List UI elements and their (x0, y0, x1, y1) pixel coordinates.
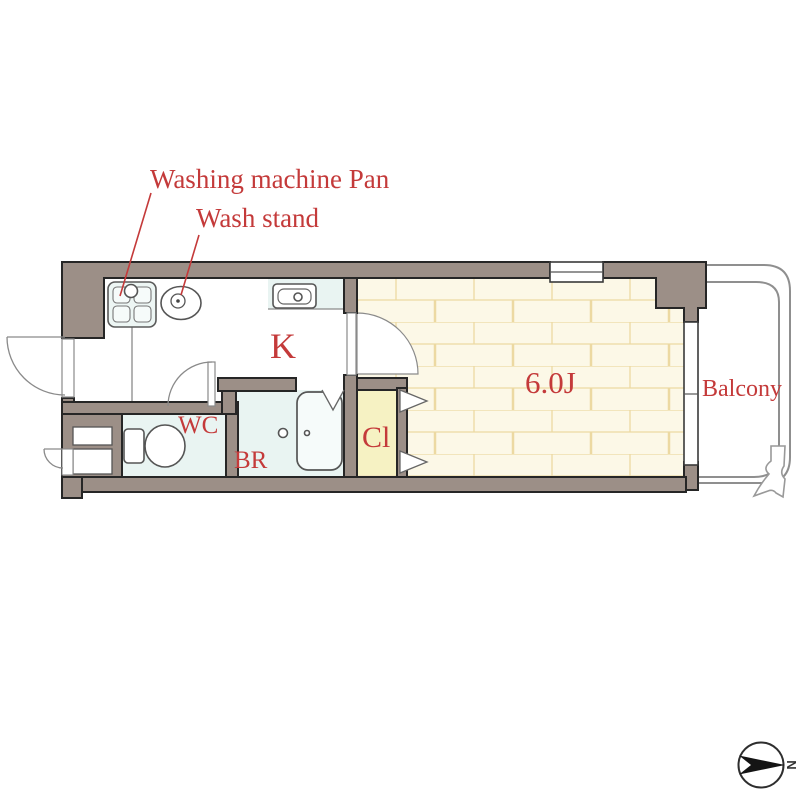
meter-box-upper (73, 427, 112, 445)
floor-plan-canvas: Washing machine Pan Wash stand K 6.0J Ba… (0, 0, 800, 800)
toilet-label: WC (178, 412, 218, 439)
compass: N (739, 743, 800, 788)
pan-corner (134, 306, 151, 322)
toilet (124, 425, 185, 467)
entrance-door-frame (62, 339, 74, 397)
pan-drain (125, 285, 138, 298)
wall-kitchen-room-divider (344, 278, 357, 313)
compass-north-label: N (784, 760, 799, 769)
bathroom-drain (279, 429, 288, 438)
wash-stand (161, 287, 201, 320)
pan-corner (113, 306, 130, 322)
toilet-tank (124, 429, 144, 463)
balcony-partition-panel (754, 446, 785, 497)
wall-bottom-left-foot (62, 477, 82, 498)
wall-connector (222, 391, 236, 414)
wash-basin-drain (176, 299, 180, 303)
wall-bottom (62, 477, 686, 492)
kitchen-label: K (270, 326, 296, 366)
wash-stand-label: Wash stand (196, 203, 320, 233)
bathroom-label: BR (234, 447, 268, 474)
callout-leaders (120, 193, 199, 296)
washing-machine-pan-label: Washing machine Pan (150, 164, 390, 194)
meter-box-door-frame (62, 449, 73, 475)
washroom-door-leaf (208, 362, 215, 406)
floor-plan: Washing machine Pan Wash stand K 6.0J Ba… (0, 0, 800, 800)
entrance-door-arc (7, 337, 65, 395)
washroom-door-arc (168, 362, 212, 406)
service-door-arc (44, 449, 63, 468)
balcony-label: Balcony (702, 376, 782, 402)
meter-box-lower (73, 449, 112, 474)
closet-label: Cl (362, 421, 390, 454)
wall-bathroom-top (218, 378, 296, 391)
room-door-leaf (347, 313, 356, 375)
kitchen-sink (273, 284, 316, 308)
washing-machine-pan (108, 282, 156, 327)
wash-basin (161, 287, 201, 320)
bathtub-drain (305, 431, 310, 436)
sink-drain (294, 293, 302, 301)
wall-bathroom-closet-divider (344, 375, 357, 477)
washing-machine-pan-leader (120, 193, 151, 296)
main-room-label: 6.0J (525, 365, 576, 400)
